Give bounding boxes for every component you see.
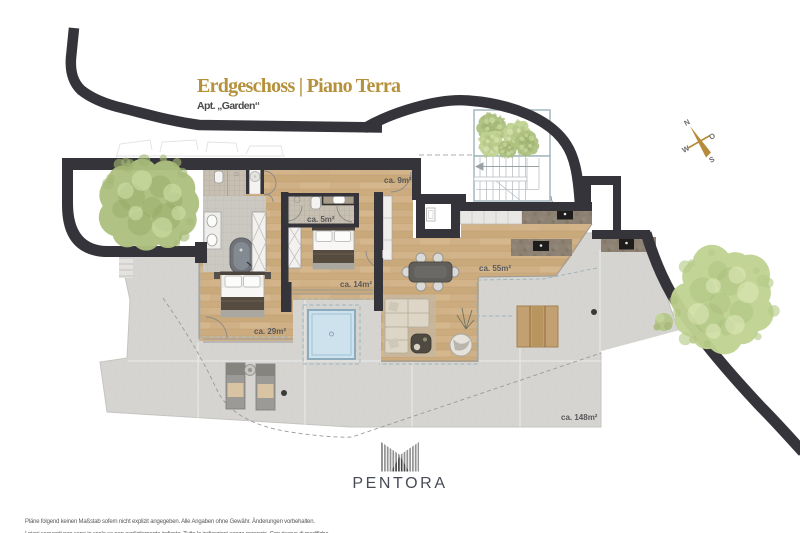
svg-text:PENTORA: PENTORA — [352, 475, 447, 492]
svg-text:ca. 5m²: ca. 5m² — [307, 215, 335, 224]
svg-text:ca. 148m²: ca. 148m² — [561, 413, 598, 422]
svg-text:Pläne folgend keinen Maßstab s: Pläne folgend keinen Maßstab sofern nich… — [25, 518, 315, 525]
svg-text:ca. 9m²: ca. 9m² — [384, 176, 412, 185]
svg-text:Apt. „Garden“: Apt. „Garden“ — [197, 100, 260, 112]
svg-text:ca. 55m²: ca. 55m² — [479, 264, 511, 273]
svg-text:ca. 14m²: ca. 14m² — [340, 280, 372, 289]
svg-text:ca. 29m²: ca. 29m² — [254, 327, 286, 336]
svg-text:Erdgeschoss | Piano Terra: Erdgeschoss | Piano Terra — [197, 75, 401, 97]
